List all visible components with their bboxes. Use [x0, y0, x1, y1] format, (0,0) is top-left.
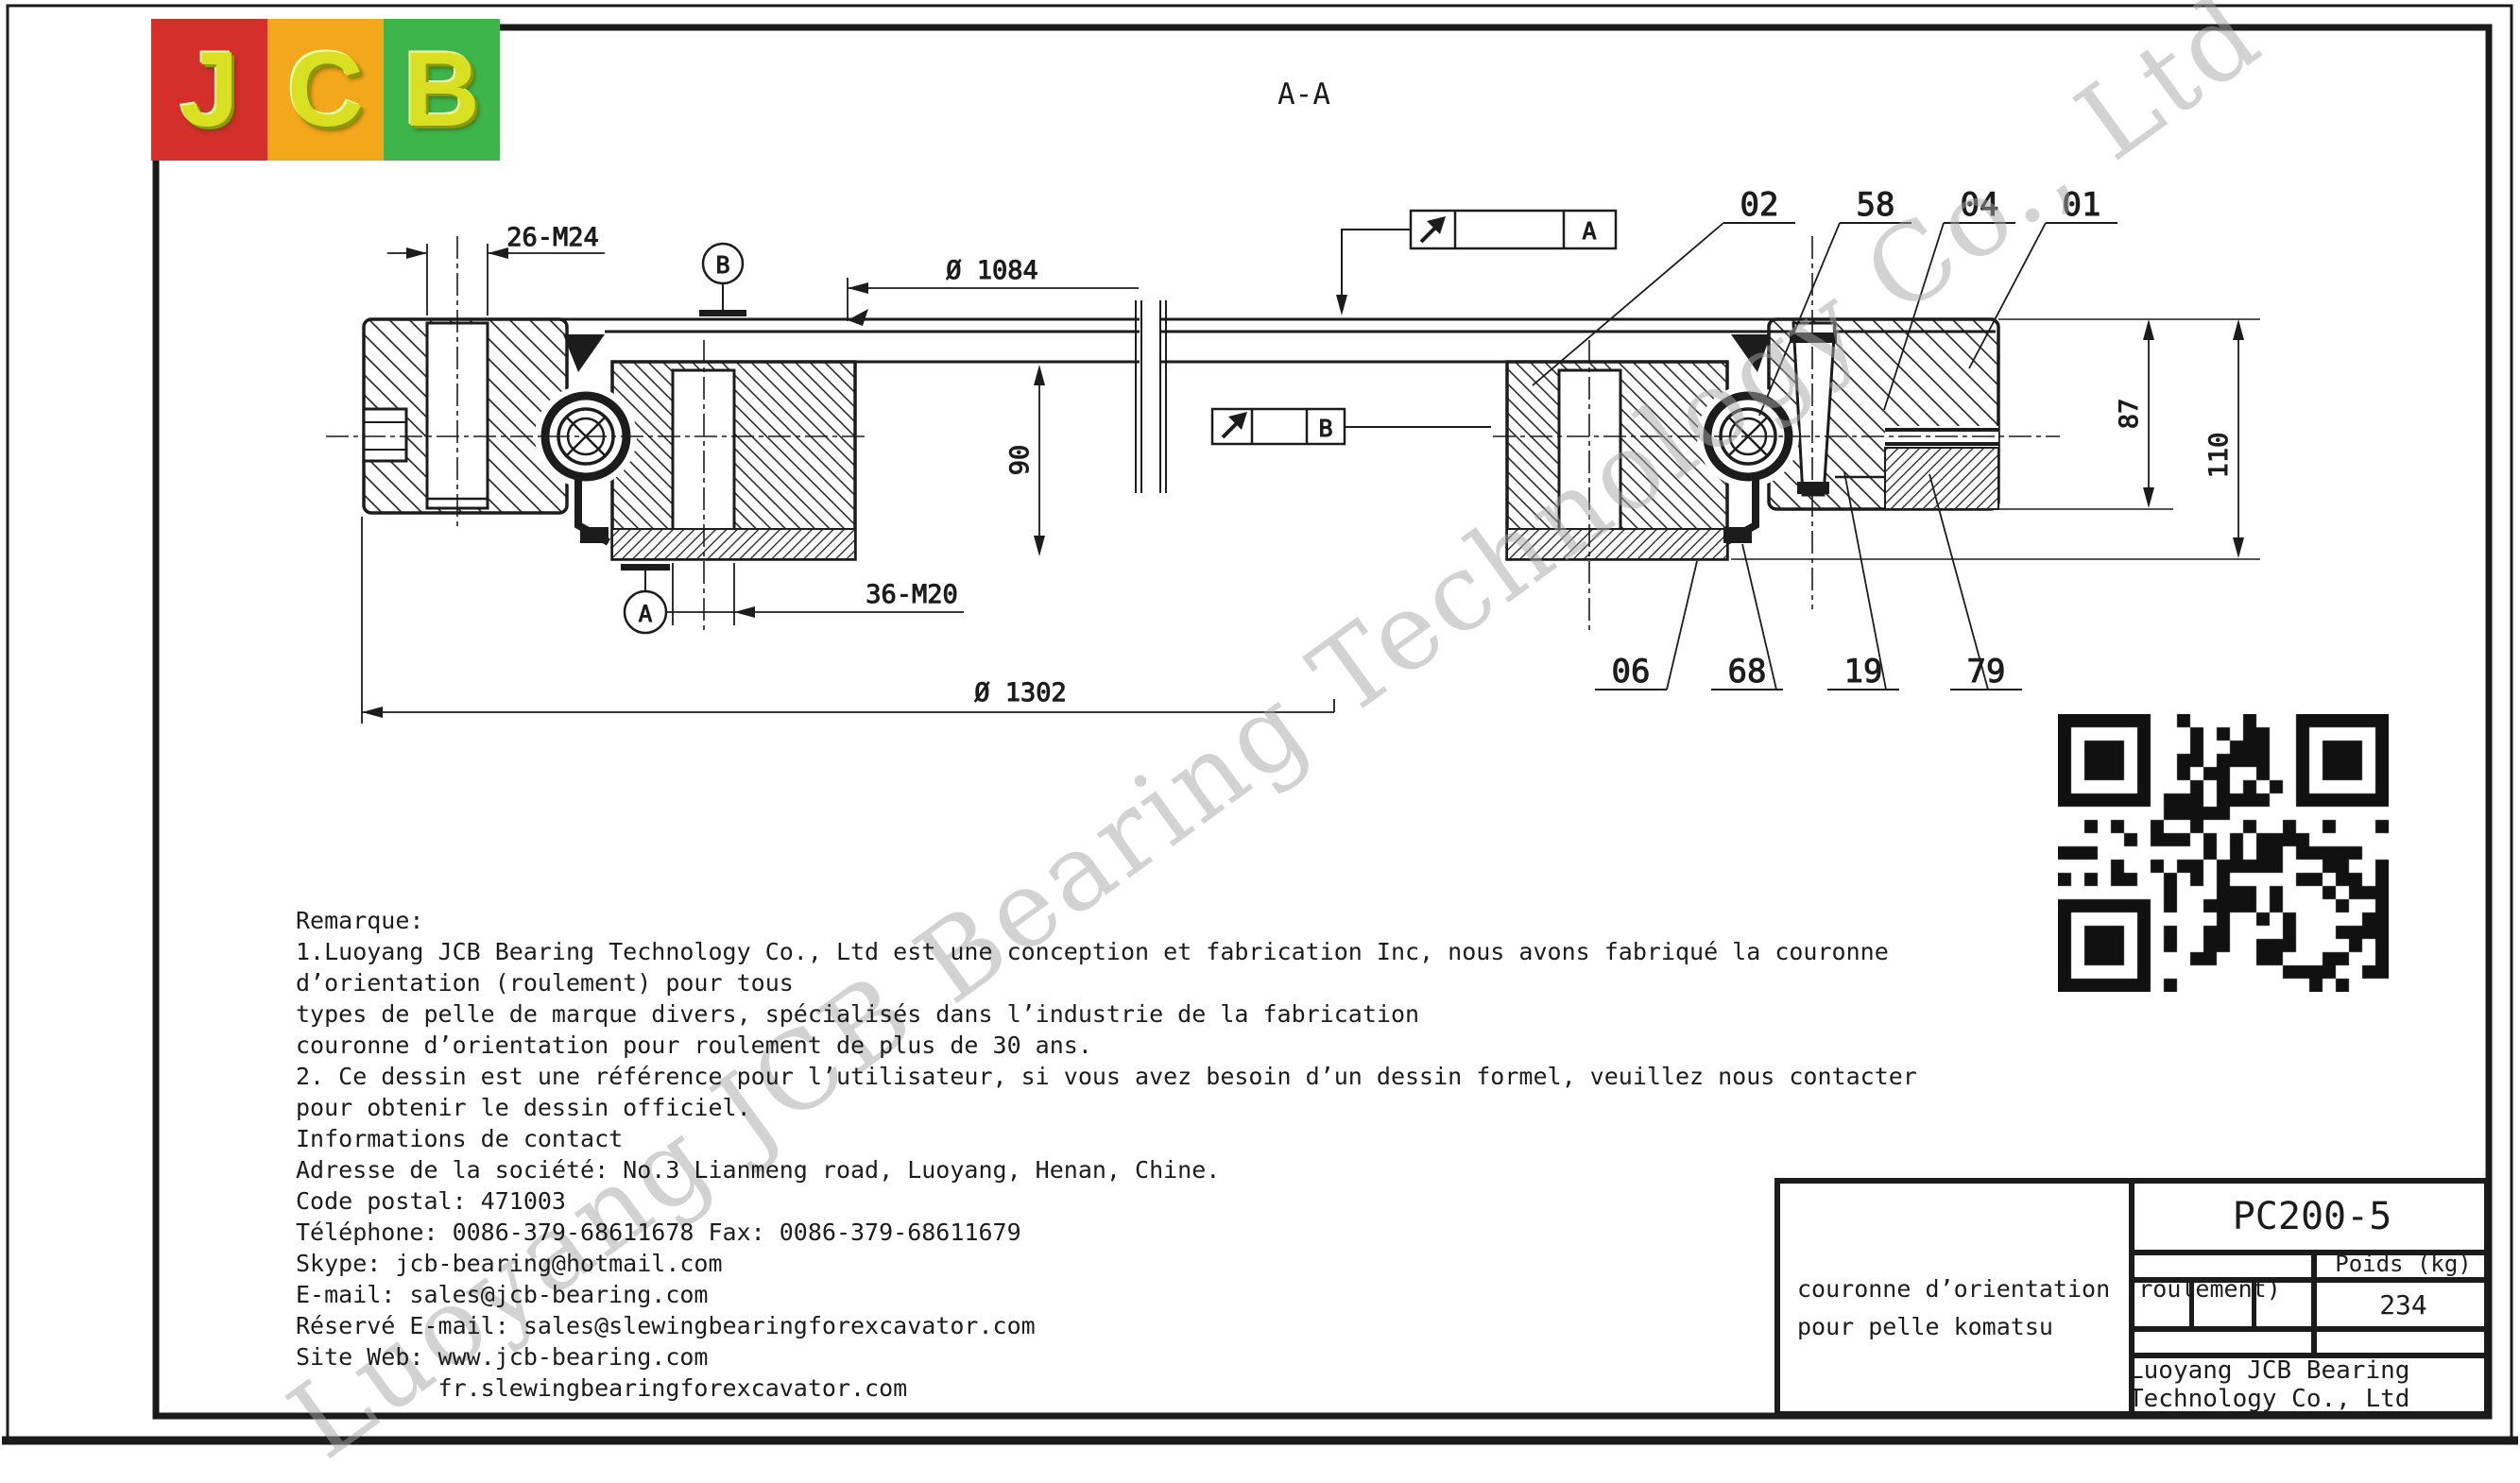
logo-panel-green: B: [384, 19, 500, 161]
right-inner-ring: [1507, 362, 1727, 559]
logo-panel-orange: C: [267, 19, 384, 161]
left-inner-ring: [612, 362, 855, 559]
part-label: 02: [1740, 186, 1779, 224]
datum-b-label: B: [715, 251, 729, 279]
part-label: 79: [1967, 653, 2006, 690]
logo-letter-j: J: [180, 37, 238, 143]
dim-26-M24: [387, 244, 605, 315]
dim-110-label: 110: [2204, 433, 2234, 479]
dim-90-label: 90: [1005, 445, 1035, 476]
dim-90: [1034, 365, 1045, 556]
logo-letter-b: B: [403, 37, 480, 143]
section-title: A-A: [1277, 77, 1330, 111]
title-part-number: PC200-5: [2134, 1184, 2490, 1250]
remarks-block: Remarque: 1.Luoyang JCB Bearing Technolo…: [296, 905, 1917, 1404]
jcb-logo: J C B: [151, 19, 500, 161]
logo-panel-red: J: [151, 19, 267, 161]
part-label: 01: [2063, 186, 2101, 224]
section-box-a: [1336, 211, 1616, 315]
dim-36-M20-label: 36-M20: [866, 580, 958, 609]
title-block: PC200-5 Poids (kg) 234 Luoyang JCB Beari…: [1774, 1178, 2490, 1417]
weight-label: Poids (kg): [2317, 1250, 2490, 1277]
dim-1084-label: Ø 1084: [946, 256, 1038, 285]
logo-letter-c: C: [287, 37, 364, 143]
section-box-a-label: A: [1582, 217, 1596, 245]
dim-1302-label: Ø 1302: [974, 678, 1067, 707]
dim-87-label: 87: [2115, 399, 2144, 430]
qr-code: [2058, 714, 2389, 992]
part-label: 06: [1612, 653, 1651, 690]
weight-value: 234: [2317, 1283, 2490, 1326]
title-company: Luoyang JCB Bearing Technology Co., Ltd: [2129, 1358, 2490, 1411]
right-outer-ring: [1769, 319, 1998, 509]
section-box-b: [1212, 409, 1491, 444]
title-description: couronne d’orientation (roulement) pour …: [1797, 1270, 2281, 1346]
left-outer-ring: [364, 319, 567, 513]
drawing-sheet: Luoyang JCB Bearing Technology Co., Ltd: [0, 0, 2520, 1445]
part-label: 04: [1961, 186, 1999, 224]
title-description-line2: pour pelle komatsu: [1797, 1308, 2281, 1346]
part-label: 58: [1857, 186, 1895, 224]
title-description-line1: couronne d’orientation (roulement): [1797, 1270, 2281, 1308]
part-label: 19: [1844, 653, 1883, 690]
section-box-b-label: B: [1318, 415, 1332, 442]
dim-26-M24-label: 26-M24: [506, 223, 599, 252]
datum-a-label: A: [639, 601, 653, 627]
part-label: 68: [1728, 653, 1767, 690]
